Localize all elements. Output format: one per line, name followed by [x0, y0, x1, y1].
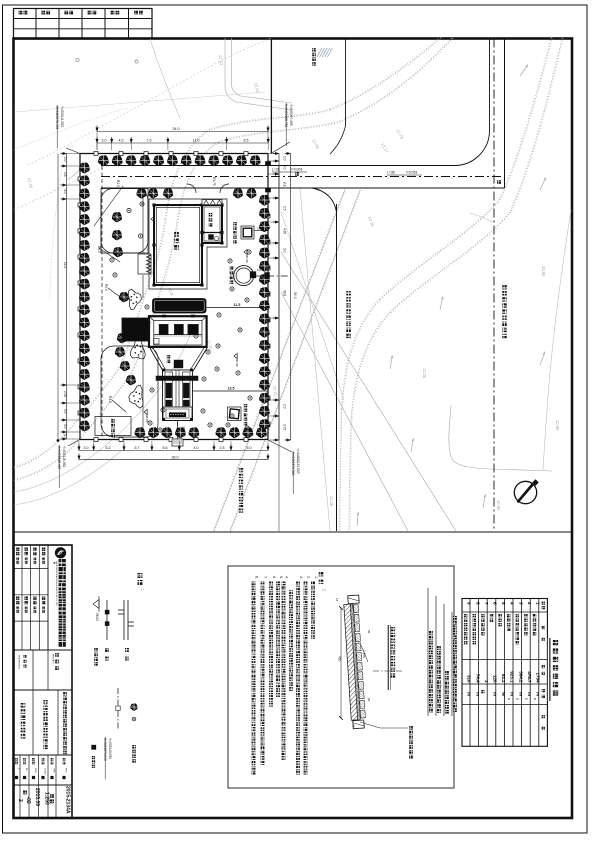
svg-text:2.0: 2.0: [63, 157, 67, 162]
svg-text:34.0: 34.0: [173, 127, 180, 131]
svg-text:74.4: 74.4: [475, 674, 480, 683]
svg-text:6.: 6.: [272, 576, 276, 579]
svg-text:m: m: [527, 692, 532, 696]
svg-text:96.00: 96.00: [245, 255, 249, 263]
svg-text:3.0: 3.0: [257, 227, 262, 231]
svg-text:30: 30: [351, 604, 355, 608]
svg-text:R1.5: R1.5: [108, 396, 112, 403]
svg-text:10.90: 10.90: [496, 500, 501, 511]
svg-text::: :: [139, 589, 145, 590]
svg-text:476.7: 476.7: [527, 671, 532, 683]
svg-text:4.8: 4.8: [63, 172, 67, 177]
svg-text:3.: 3.: [299, 576, 303, 579]
svg-text:923.1: 923.1: [510, 671, 515, 683]
svg-text:R4.0: R4.0: [116, 180, 120, 187]
svg-text:m: m: [475, 692, 480, 696]
svg-text:%: %: [501, 692, 506, 696]
svg-text:450: 450: [338, 656, 342, 662]
svg-text:96.00: 96.00: [145, 415, 149, 423]
svg-text:DATE: DATE: [34, 768, 37, 774]
svg-text:4.65: 4.65: [283, 228, 287, 234]
svg-text:1:250: 1:250: [43, 792, 49, 805]
svg-text:53.2: 53.2: [501, 674, 506, 683]
svg-text:m: m: [467, 692, 472, 696]
svg-text:m: m: [536, 692, 541, 696]
svg-text:10.90: 10.90: [555, 420, 560, 431]
svg-text:30: 30: [352, 724, 356, 728]
svg-text:11.00: 11.00: [329, 496, 334, 507]
svg-text:3.0: 3.0: [102, 139, 107, 143]
svg-text:33.6: 33.6: [283, 290, 287, 296]
svg-text:PROJECT: PROJECT: [52, 654, 54, 665]
svg-text:3.0: 3.0: [283, 248, 287, 253]
svg-text:11.5: 11.5: [234, 303, 241, 307]
svg-text:3.5: 3.5: [182, 426, 186, 430]
svg-text:PROJ: PROJ: [65, 768, 67, 773]
svg-text:12.62: 12.62: [218, 55, 224, 67]
svg-text:4.0: 4.0: [283, 165, 287, 170]
svg-text:5.6: 5.6: [163, 446, 168, 450]
svg-text:50: 50: [367, 698, 371, 702]
svg-text:10.90: 10.90: [541, 266, 546, 277]
svg-text:2.5: 2.5: [220, 446, 225, 450]
svg-text:3.0: 3.0: [63, 189, 67, 194]
svg-text:Y=503111.553: Y=503111.553: [60, 106, 64, 127]
svg-text:R4.0: R4.0: [97, 246, 101, 253]
svg-text:Y=503143.933: Y=503143.933: [296, 452, 300, 474]
svg-text:4.0: 4.0: [119, 139, 124, 143]
svg-text:2015.09: 2015.09: [34, 788, 40, 806]
svg-text:96.00: 96.00: [95, 613, 99, 621]
svg-text:R1.75: R1.75: [212, 177, 216, 186]
svg-text:13.5: 13.5: [228, 387, 235, 391]
svg-text:12.0: 12.0: [193, 139, 200, 143]
svg-text:3.0: 3.0: [63, 424, 67, 429]
svg-text:m: m: [510, 692, 515, 696]
svg-text:5.: 5.: [279, 576, 283, 579]
svg-text:Y=503097.495: Y=503097.495: [289, 104, 293, 126]
svg-text:0.7: 0.7: [63, 434, 67, 439]
svg-text:6.8: 6.8: [283, 182, 287, 187]
svg-text:TYPE: TYPE: [53, 768, 55, 774]
svg-text:2015-2134A: 2015-2134A: [65, 786, 71, 814]
svg-text:1.: 1.: [314, 576, 318, 579]
svg-text:i=0.003: i=0.003: [291, 168, 302, 172]
svg-text:8.5: 8.5: [244, 139, 249, 143]
svg-text:3.0: 3.0: [84, 446, 89, 450]
svg-text:14.4: 14.4: [63, 262, 67, 268]
svg-text:96.00: 96.00: [152, 222, 156, 230]
svg-text:2.35: 2.35: [63, 391, 67, 397]
svg-text:HEFEI MUNICIPAL DESIGN INSTITU: HEFEI MUNICIPAL DESIGN INSTITUTE CO.,LTD: [55, 561, 58, 606]
svg-text:L=36: L=36: [387, 171, 395, 175]
svg-text:3.5: 3.5: [63, 409, 67, 414]
svg-text:6.0: 6.0: [257, 268, 262, 272]
svg-text:5.7: 5.7: [135, 446, 140, 450]
svg-text:2.: 2.: [306, 576, 310, 579]
svg-text:2.0: 2.0: [283, 156, 287, 161]
svg-text:4.: 4.: [284, 576, 288, 579]
svg-text:120: 120: [493, 675, 498, 683]
svg-text:2: 2: [17, 799, 23, 802]
svg-text:SUB-PROJECT: SUB-PROJECT: [18, 655, 20, 670]
svg-text:Y=503143.933: Y=503143.933: [108, 738, 112, 759]
svg-text:6.2: 6.2: [106, 446, 111, 450]
svg-text:310: 310: [467, 675, 472, 683]
svg-text:i=0.053: i=0.053: [406, 171, 417, 175]
svg-text:m: m: [493, 692, 498, 696]
svg-text:15: 15: [335, 598, 339, 602]
svg-text:4.0: 4.0: [194, 446, 199, 450]
svg-text:50.0: 50.0: [293, 292, 297, 299]
svg-text:96.00: 96.00: [129, 331, 133, 339]
svg-text:2.0: 2.0: [283, 404, 287, 409]
svg-text:1.5%: 1.5%: [362, 650, 366, 658]
svg-text:SCALE: SCALE: [44, 768, 47, 775]
svg-text:3.75: 3.75: [283, 424, 287, 430]
svg-text:7.: 7.: [263, 576, 267, 579]
svg-text:m: m: [518, 692, 523, 696]
svg-text:11.00: 11.00: [422, 368, 427, 379]
svg-text:50: 50: [367, 630, 371, 634]
svg-text:Y=503116.962: Y=503116.962: [62, 446, 66, 467]
svg-text:7.5: 7.5: [147, 139, 152, 143]
svg-text:R2.0: R2.0: [104, 284, 108, 291]
svg-text:5.0: 5.0: [247, 446, 252, 450]
svg-text:8.: 8.: [254, 576, 258, 579]
svg-text:36.0: 36.0: [172, 456, 179, 460]
svg-text:2.5: 2.5: [283, 206, 287, 211]
svg-text:1754: 1754: [536, 672, 541, 683]
svg-text:96.00: 96.00: [235, 359, 239, 367]
svg-text:384.2: 384.2: [518, 671, 523, 683]
svg-text:-02: -02: [25, 797, 31, 804]
